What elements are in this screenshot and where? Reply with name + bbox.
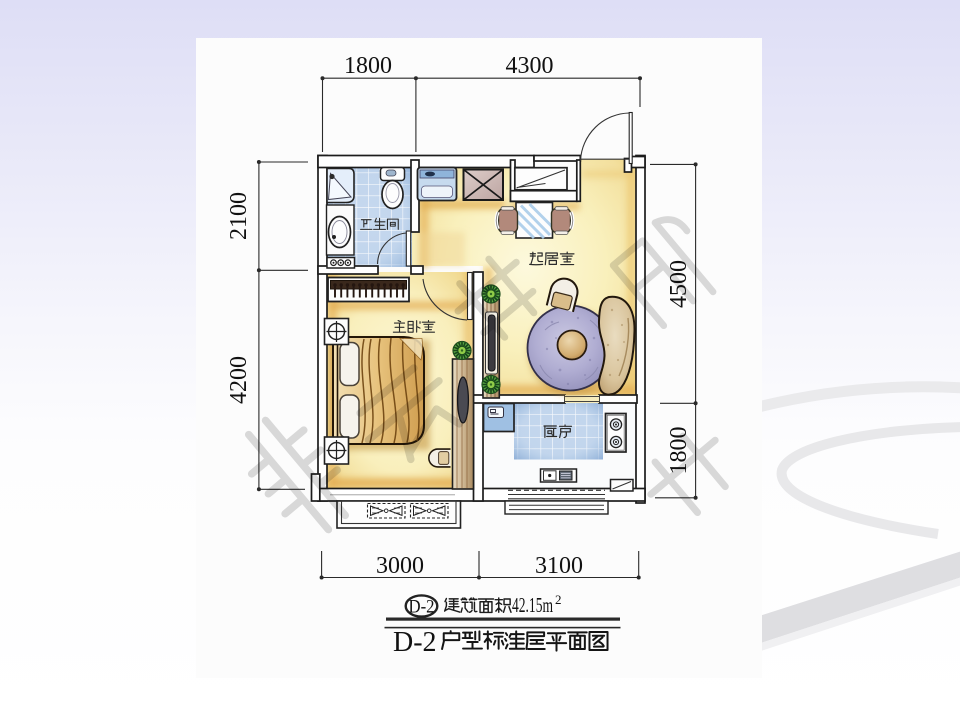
svg-text:2: 2 [555, 592, 562, 607]
svg-text:1800: 1800 [344, 53, 392, 79]
svg-text:D-2: D-2 [393, 627, 437, 658]
svg-text:42.15m: 42.15m [512, 593, 553, 617]
svg-text:3000: 3000 [376, 553, 424, 579]
svg-text:D-2: D-2 [409, 598, 435, 618]
svg-text:3100: 3100 [535, 553, 583, 579]
svg-text:2100: 2100 [226, 192, 252, 240]
svg-text:4200: 4200 [226, 356, 252, 404]
svg-text:4300: 4300 [506, 53, 554, 79]
